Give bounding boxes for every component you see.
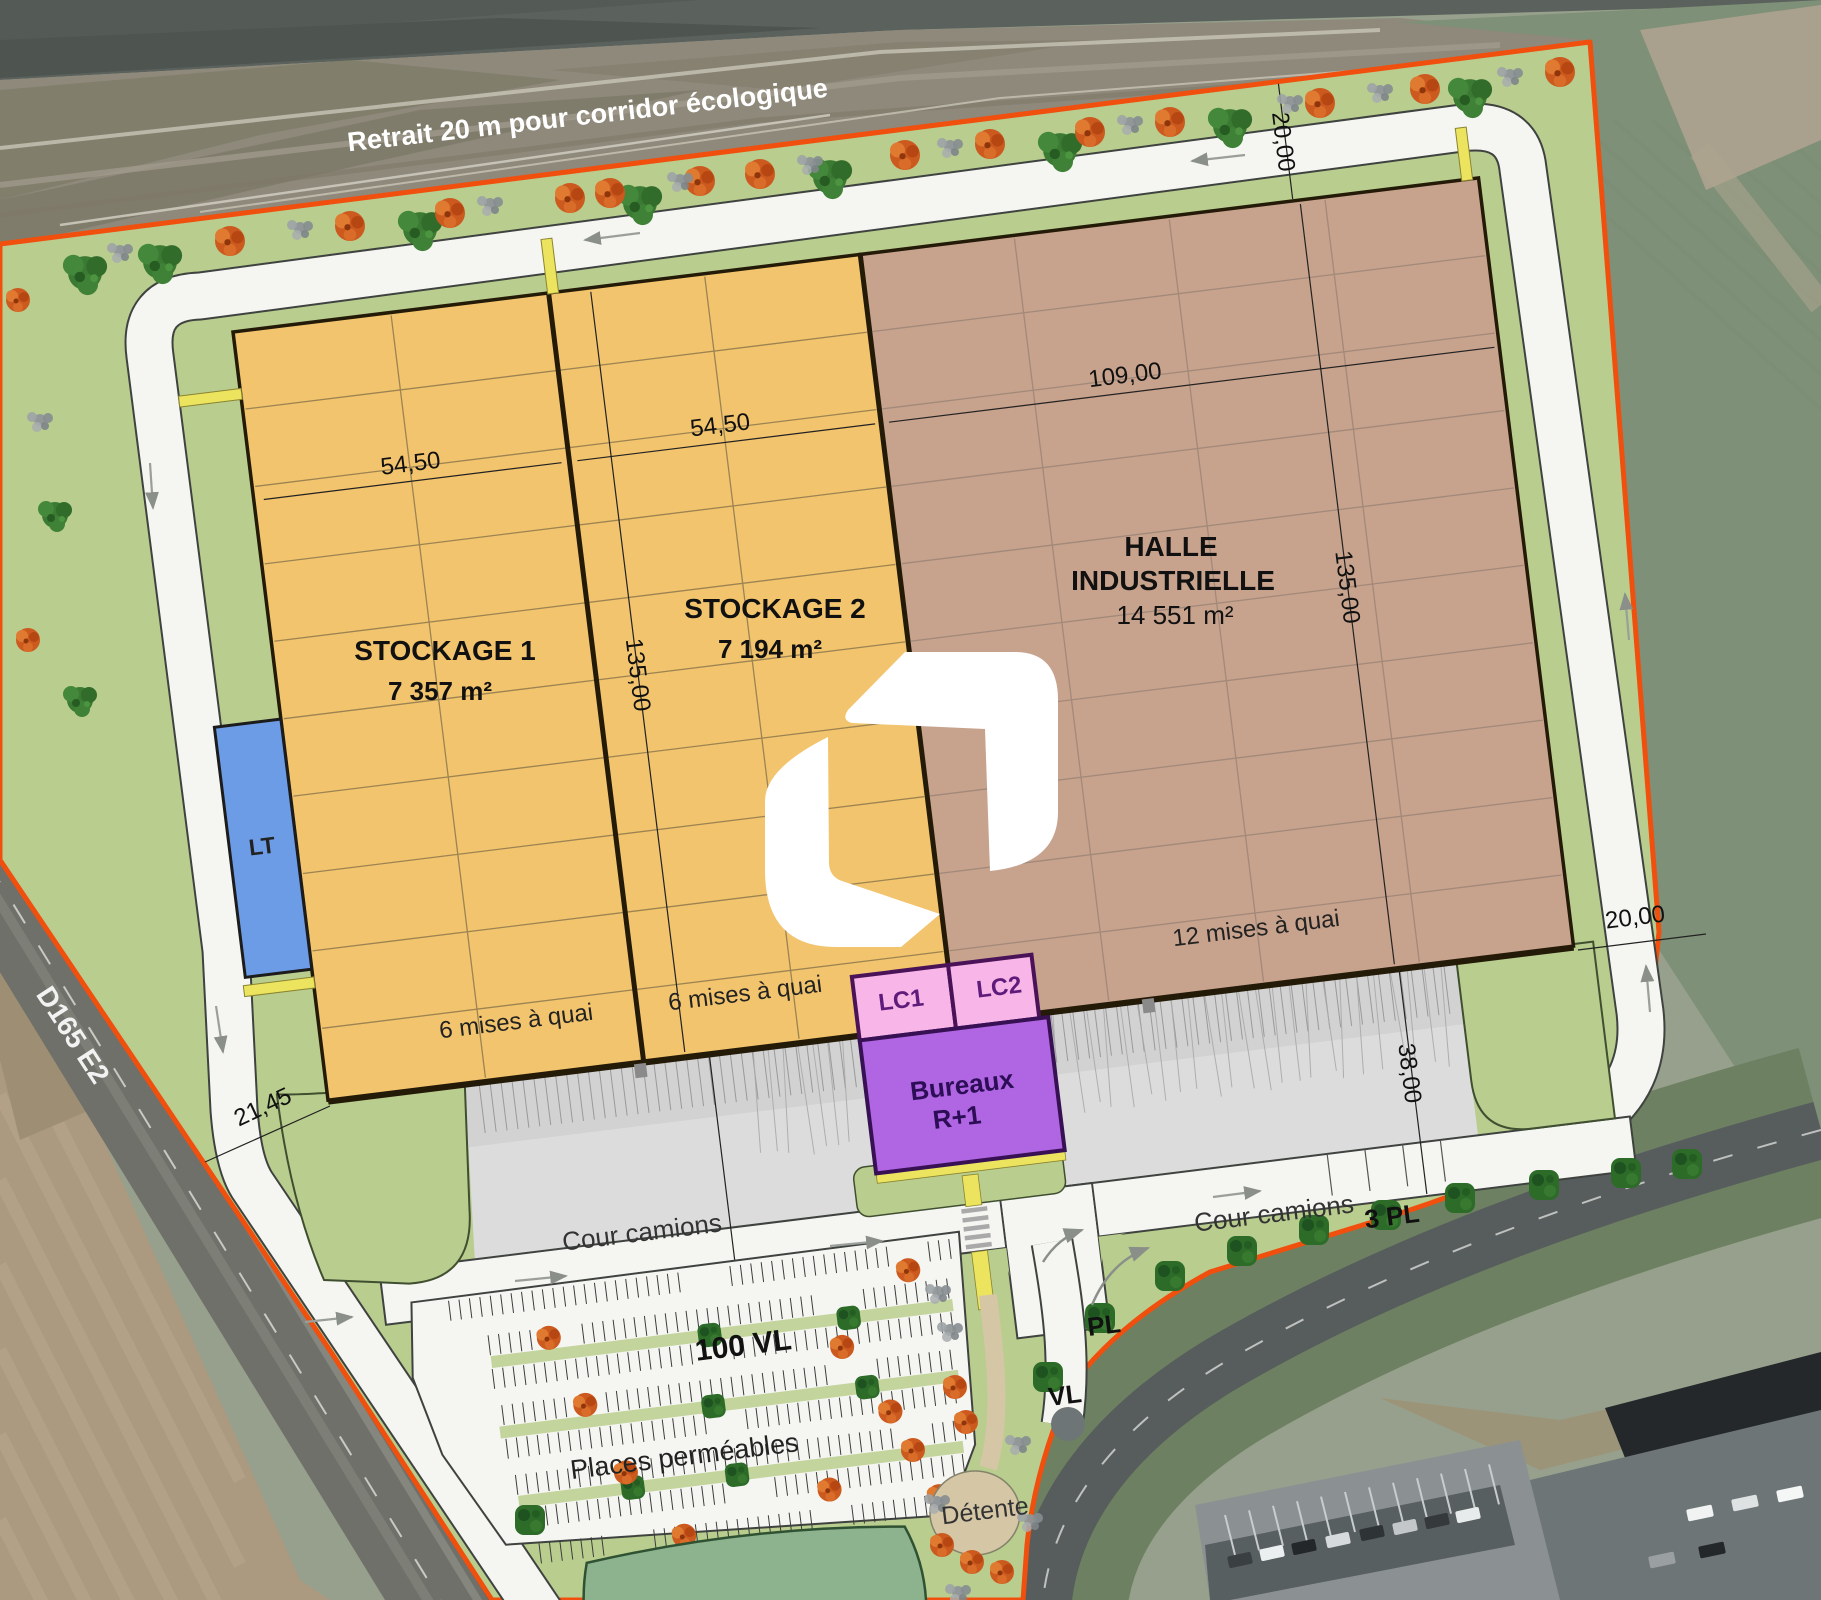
svg-text:7 194 m²: 7 194 m² [718, 634, 822, 664]
svg-text:HALLE: HALLE [1124, 531, 1217, 562]
svg-text:LC1: LC1 [877, 984, 925, 1016]
svg-text:VL: VL [1047, 1378, 1084, 1412]
svg-text:7 357 m²: 7 357 m² [388, 676, 492, 706]
svg-text:INDUSTRIELLE: INDUSTRIELLE [1071, 565, 1275, 596]
svg-text:PL: PL [1086, 1308, 1123, 1342]
svg-text:LT: LT [247, 832, 276, 861]
svg-text:R+1: R+1 [931, 1099, 983, 1135]
svg-text:STOCKAGE 1: STOCKAGE 1 [354, 635, 536, 666]
svg-text:STOCKAGE 2: STOCKAGE 2 [684, 593, 866, 624]
svg-text:14 551 m²: 14 551 m² [1116, 600, 1233, 630]
svg-text:LC2: LC2 [975, 971, 1023, 1003]
